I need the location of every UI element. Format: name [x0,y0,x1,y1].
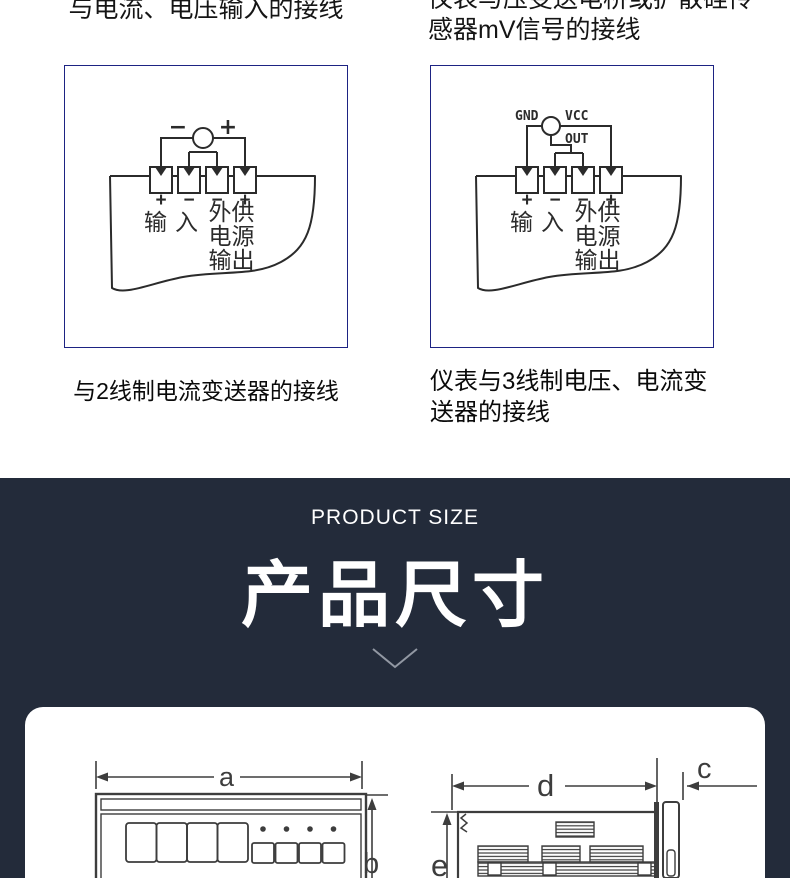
label-supply-output-col2: 供源出 [229,200,252,276]
pcb-components [478,822,655,876]
label-supply-output-col2: 供源出 [595,200,618,276]
dim-c-label: c [697,753,712,785]
meter-minus-sign: − [169,115,187,140]
indicator-dots [260,826,336,832]
wiring-diagram-3wire-box: GND VCC OUT + − − + 输入 外电输 供源出 [430,65,714,348]
caption-3wire: 仪表与3线制电压、电流变 送器的接线 [430,366,750,428]
caption-3wire-line1: 仪表与3线制电压、电流变 [430,366,750,397]
front-buttons [252,843,345,863]
wiring-header-right: 仪表与压变送电桥或扩散硅传 感器mV信号的接线 [428,0,778,46]
caption-3wire-line2: 送器的接线 [430,397,750,428]
wiring-diagram-2wire-box: − + + − − + 输入 外电输 供源出 [64,65,348,348]
chevron-down-icon [371,646,419,670]
page: 与电流、电压输入的接线 仪表与压变送电桥或扩散硅传 感器mV信号的接线 [0,0,790,878]
label-input: 输入 [509,203,573,237]
mount-clip [461,814,467,832]
wiring-header-right-line1: 仪表与压变送电桥或扩散硅传 [428,0,778,15]
dim-e-label: e [431,848,448,878]
digit-windows [126,823,248,862]
label-external-power-col1: 外电输 [572,200,595,276]
front-view-dimension-drawing: a b [88,757,390,878]
side-view-dimension-drawing: d c e [425,750,770,878]
wiring-header-right-line2: 感器mV信号的接线 [428,15,778,46]
label-input: 输入 [143,203,207,237]
product-size-eyebrow: PRODUCT SIZE [0,506,790,530]
transmitter-circle [193,128,213,148]
dim-d-label: d [537,768,554,803]
dim-a-label: a [219,762,235,792]
label-external-power-col1: 外电输 [206,200,229,276]
meter-plus-sign: + [219,115,237,140]
wiring-header-left: 与电流、电压输入的接线 [64,0,348,25]
vcc-label: VCC [565,109,588,124]
product-size-title: 产品尺寸 [0,536,790,641]
gnd-label: GND [515,109,539,124]
transmitter-circle [542,117,560,135]
out-label: OUT [565,132,589,147]
caption-2wire: 与2线制电流变送器的接线 [64,372,348,406]
